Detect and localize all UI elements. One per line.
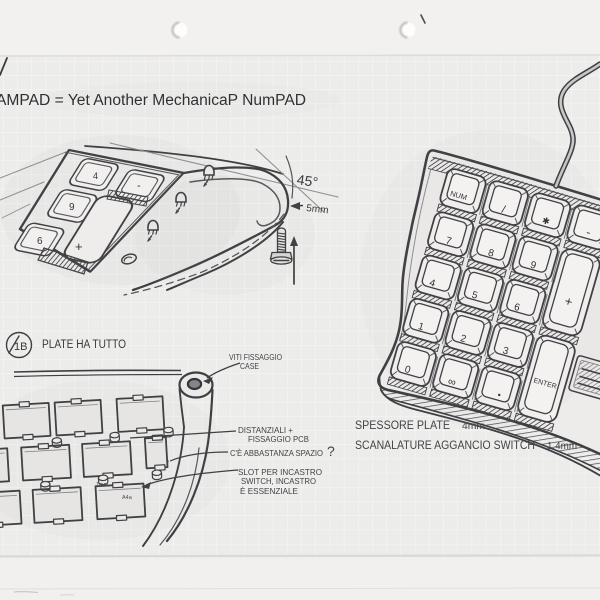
- svg-text:FISSAGGIO PCB: FISSAGGIO PCB: [248, 434, 309, 444]
- svg-text:1.4mm: 1.4mm: [547, 441, 577, 452]
- svg-text:SWITCH, INCASTRO: SWITCH, INCASTRO: [241, 476, 316, 486]
- svg-text:SPESSORE PLATE: SPESSORE PLATE: [355, 418, 450, 432]
- svg-text:1B: 1B: [14, 341, 27, 353]
- svg-text:45°: 45°: [296, 171, 319, 190]
- svg-text:?: ?: [327, 443, 335, 459]
- svg-text:C'È ABBASTANZA SPAZIO: C'È ABBASTANZA SPAZIO: [230, 448, 323, 458]
- svg-text:CASE: CASE: [240, 361, 259, 371]
- svg-text:PLATE HA TUTTO: PLATE HA TUTTO: [42, 339, 126, 351]
- svg-text:È ESSENZIALE: È ESSENZIALE: [240, 486, 298, 496]
- svg-text:SCANALATURE AGGANCIO SWITCH: SCANALATURE AGGANCIO SWITCH: [355, 438, 535, 452]
